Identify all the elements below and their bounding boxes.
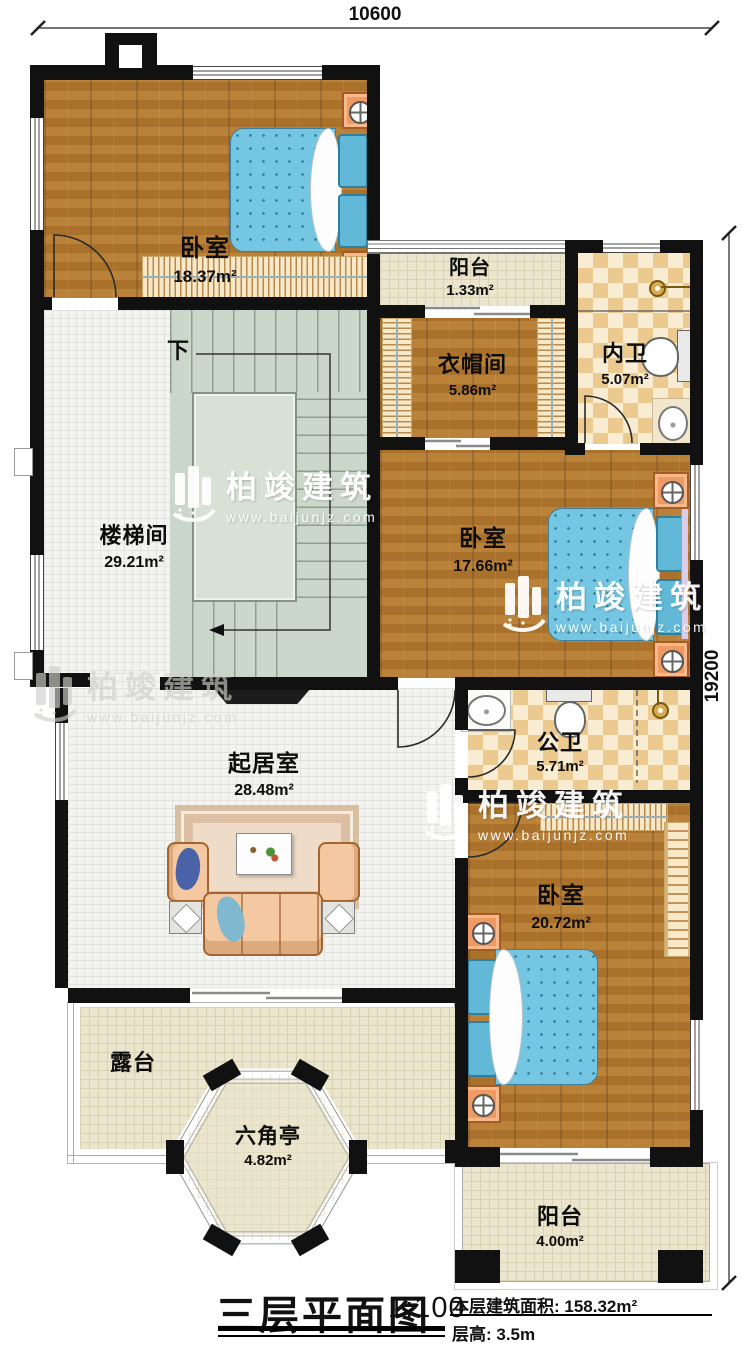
room-label-bedroom-bottom: 卧室 20.72m² xyxy=(515,883,607,933)
room-label-balcony-bottom: 阳台 4.00m² xyxy=(522,1205,598,1251)
watermark-url: www.baijunjz.com xyxy=(226,509,378,525)
dimension-height: 19200 xyxy=(702,636,724,716)
room-area: 18.37m² xyxy=(150,268,260,287)
room-area: 5.71m² xyxy=(523,759,597,776)
wall-segment xyxy=(380,305,425,318)
wall-segment xyxy=(565,240,603,253)
floor-plan-canvas: 柏竣建筑 www.baijunjz.com 柏竣建筑 www.baijunjz.… xyxy=(0,0,750,1351)
room-area: 20.72m² xyxy=(515,915,607,933)
window xyxy=(193,65,322,80)
room-name: 露台 xyxy=(104,1051,162,1075)
side-table xyxy=(169,901,202,934)
window xyxy=(30,555,44,650)
room-name: 衣帽间 xyxy=(415,353,530,377)
nightstand xyxy=(653,641,689,678)
side-table-top xyxy=(172,904,201,933)
wall-segment xyxy=(565,253,578,455)
armchair-right xyxy=(318,842,360,902)
room-label-bedroom-top-left: 卧室 18.37m² xyxy=(150,236,260,287)
title-underline-thick xyxy=(218,1326,445,1331)
wall-segment xyxy=(640,443,703,455)
room-name: 卧室 xyxy=(515,883,607,908)
room-area: 28.48m² xyxy=(213,782,315,800)
watermark: 柏竣建筑 www.baijunjz.com xyxy=(33,662,239,725)
window-sill xyxy=(14,652,33,680)
wall-segment xyxy=(367,65,380,690)
watermark: 柏竣建筑 www.baijunjz.com xyxy=(172,462,378,525)
wall-segment xyxy=(380,437,425,450)
sink-icon xyxy=(467,695,506,726)
room-label-hex-pavilion: 六角亭 4.82m² xyxy=(226,1125,310,1170)
wall-segment xyxy=(445,1140,460,1163)
wall-segment xyxy=(30,297,52,310)
wall-segment xyxy=(490,437,578,450)
toilet-tank xyxy=(546,688,592,702)
terrace-rail-line-left xyxy=(73,1002,74,1164)
watermark-url: www.baijunjz.com xyxy=(556,619,708,635)
wall-segment xyxy=(650,1147,703,1167)
nightstand xyxy=(653,472,689,509)
wall-segment xyxy=(380,677,398,690)
brand-logo-icon xyxy=(172,465,216,523)
balcony-pillar xyxy=(455,1250,500,1283)
window xyxy=(690,1020,703,1110)
room-name: 起居室 xyxy=(213,751,315,776)
wall-segment xyxy=(455,677,703,690)
room-area: 1.33m² xyxy=(428,283,512,300)
room-label-living-room: 起居室 28.48m² xyxy=(213,751,315,800)
window xyxy=(603,240,660,253)
window xyxy=(30,118,44,230)
room-label-stairwell: 楼梯间 29.21m² xyxy=(88,524,180,572)
watermark: 柏竣建筑 www.baijunjz.com xyxy=(424,780,630,843)
room-name: 卧室 xyxy=(437,526,529,551)
lamp-icon xyxy=(661,481,684,504)
watermark: 柏竣建筑 www.baijunjz.com xyxy=(502,572,708,635)
wall-segment xyxy=(55,800,68,988)
room-area: 4.82m² xyxy=(226,1153,310,1170)
stairs-down-label: 下 xyxy=(164,339,192,363)
room-area: 29.21m² xyxy=(88,554,180,572)
wall-segment xyxy=(530,305,565,318)
side-table-top xyxy=(325,904,354,933)
lamp-icon xyxy=(472,922,495,945)
room-label-bedroom-middle: 卧室 17.66m² xyxy=(437,526,529,576)
room-name: 公卫 xyxy=(523,731,597,755)
side-table xyxy=(322,901,355,934)
wall-segment xyxy=(68,988,190,1003)
room-name: 内卫 xyxy=(590,342,660,366)
room-label-ensuite-bath: 内卫 5.07m² xyxy=(590,342,660,389)
wall-segment xyxy=(342,988,455,1003)
window xyxy=(55,723,68,800)
room-area: 5.07m² xyxy=(590,372,660,389)
bed-top-left xyxy=(230,128,373,250)
room-area: 4.00m² xyxy=(522,1234,598,1251)
watermark-brand: 柏竣建筑 xyxy=(87,662,239,707)
room-area: 5.86m² xyxy=(415,383,530,400)
watermark-url: www.baijunjz.com xyxy=(478,827,630,843)
sink-icon xyxy=(658,406,688,441)
floor-height-text: 层高: 3.5m xyxy=(452,1320,535,1345)
room-label-public-bath: 公卫 5.71m² xyxy=(523,731,597,776)
wardrobe-bedroom-bottom-right xyxy=(664,822,692,957)
window xyxy=(690,465,703,560)
room-label-balcony-top: 阳台 1.33m² xyxy=(428,257,512,300)
dimension-width: 10600 xyxy=(340,4,410,26)
lamp-icon xyxy=(661,650,684,673)
brand-logo-icon xyxy=(33,665,77,723)
window-sill xyxy=(14,448,33,476)
brand-logo-icon xyxy=(502,575,546,633)
wall-segment xyxy=(690,240,703,465)
wall-segment xyxy=(455,1147,500,1167)
title-underline-thin xyxy=(218,1335,445,1337)
shower-head-icon xyxy=(649,280,666,297)
bed-pillow xyxy=(338,134,368,188)
wardrobe-cloakroom-left xyxy=(382,318,412,444)
wall-segment xyxy=(30,65,44,118)
lamp-icon xyxy=(472,1094,495,1117)
brand-logo-icon xyxy=(424,783,468,841)
watermark-brand: 柏竣建筑 xyxy=(478,780,630,825)
room-name: 六角亭 xyxy=(226,1125,310,1148)
coffee-table xyxy=(236,833,292,875)
room-name: 阳台 xyxy=(522,1205,598,1229)
wall-segment xyxy=(455,858,468,1147)
title-block-divider xyxy=(450,1314,712,1316)
room-name: 阳台 xyxy=(428,257,512,279)
stairs-upper-flight xyxy=(170,310,367,393)
shower-head-icon xyxy=(652,702,669,719)
balcony-pillar xyxy=(658,1250,703,1283)
room-label-terrace: 露台 xyxy=(104,1051,162,1075)
balcony-railing xyxy=(367,240,567,254)
chimney-flue xyxy=(119,45,142,68)
watermark-url: www.baijunjz.com xyxy=(87,709,239,725)
watermark-brand: 柏竣建筑 xyxy=(556,572,708,617)
wall-segment xyxy=(455,690,468,730)
bed-bottom xyxy=(465,949,596,1083)
wall-segment xyxy=(118,297,367,310)
room-name: 楼梯间 xyxy=(88,524,180,548)
room-name: 卧室 xyxy=(150,236,260,262)
room-label-cloakroom: 衣帽间 5.86m² xyxy=(415,353,530,400)
room-area: 17.66m² xyxy=(437,558,529,576)
watermark-brand: 柏竣建筑 xyxy=(226,462,378,507)
wardrobe-cloakroom-right xyxy=(537,318,567,444)
floor-stairwell xyxy=(44,310,170,678)
wall-segment xyxy=(30,230,44,555)
bed-pillow xyxy=(338,194,368,248)
